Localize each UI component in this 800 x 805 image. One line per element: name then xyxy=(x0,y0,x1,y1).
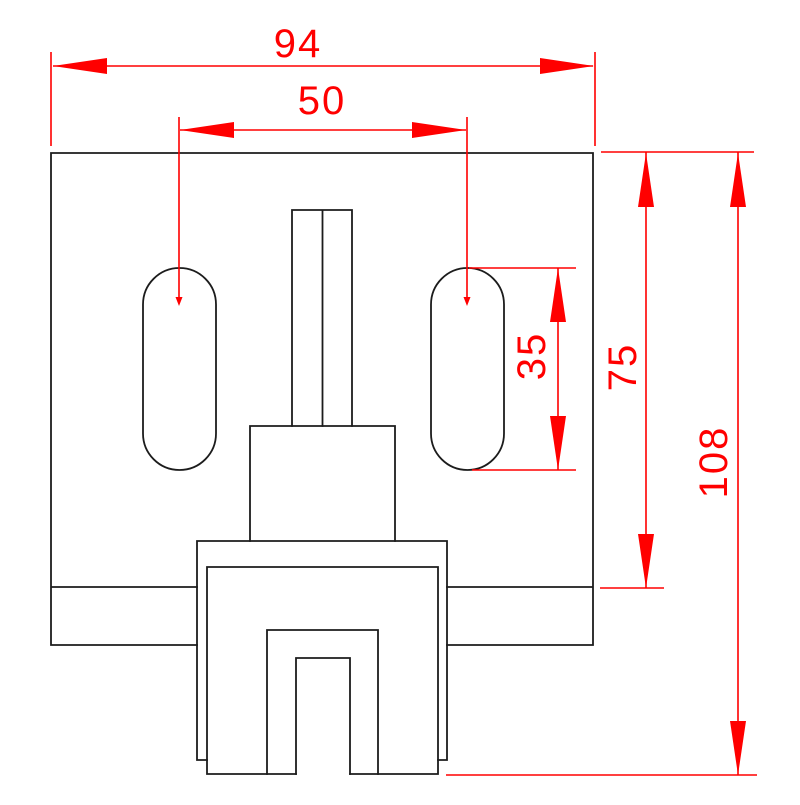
arrow-left-icon xyxy=(180,122,234,138)
arrow-down-icon xyxy=(550,416,566,470)
arrow-left-icon xyxy=(53,58,107,74)
center-tick-icon xyxy=(464,297,471,306)
drawing-canvas: 94 50 35 75 108 xyxy=(0,0,800,800)
arrow-up-icon xyxy=(550,268,566,322)
dimension-overall-height: 108 xyxy=(446,152,757,775)
middle-block xyxy=(250,426,395,541)
dimension-label: 108 xyxy=(692,426,736,499)
clamp-outer-block xyxy=(197,541,447,760)
part-outline xyxy=(51,153,593,774)
dimension-label: 75 xyxy=(601,343,645,392)
center-tick-icon xyxy=(176,297,183,306)
top-stem xyxy=(292,210,352,426)
arrow-up-icon xyxy=(638,153,654,207)
arrow-right-icon xyxy=(412,122,466,138)
dimension-plate-height: 75 xyxy=(600,152,754,588)
dimension-label: 94 xyxy=(274,22,323,66)
arrow-right-icon xyxy=(540,58,594,74)
arrow-up-icon xyxy=(730,153,746,207)
arrow-down-icon xyxy=(638,534,654,588)
clamp-inner-block xyxy=(207,567,438,774)
drawing-sheet: 94 50 35 75 108 xyxy=(0,0,800,800)
dimension-slot-length: 35 xyxy=(469,268,576,470)
dimension-label: 35 xyxy=(510,332,554,381)
clamp-window-notch xyxy=(267,630,378,774)
clamp-inner-notch xyxy=(296,658,350,774)
dimension-label: 50 xyxy=(298,79,347,123)
arrow-down-icon xyxy=(730,721,746,775)
